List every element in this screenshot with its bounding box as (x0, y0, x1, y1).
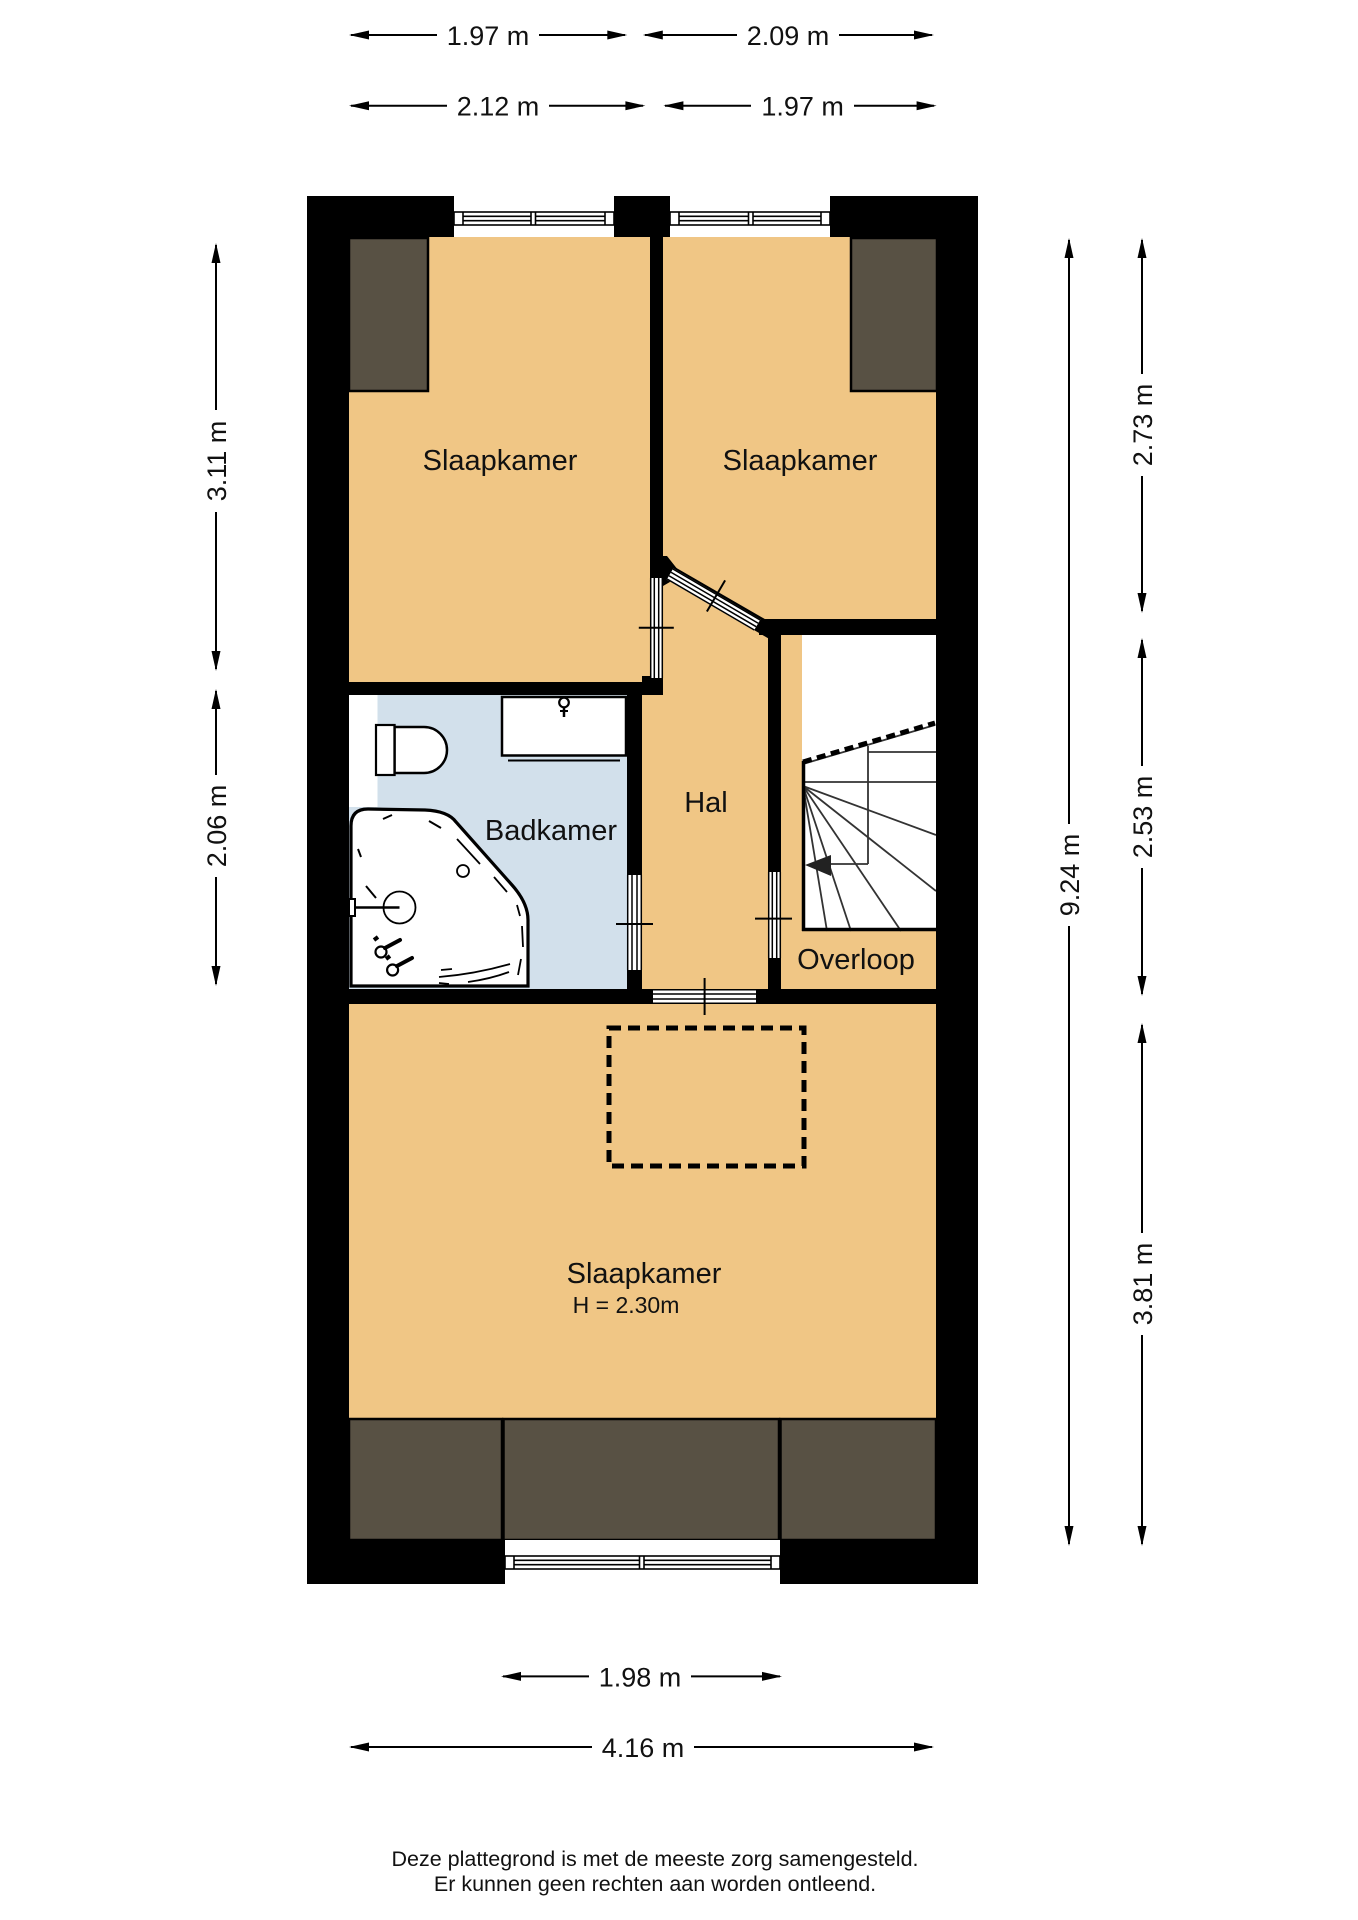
svg-text:2.53 m: 2.53 m (1128, 776, 1158, 859)
svg-text:4.16 m: 4.16 m (602, 1733, 685, 1763)
svg-text:2.12 m: 2.12 m (457, 92, 540, 122)
svg-text:Deze plattegrond is met de mee: Deze plattegrond is met de meeste zorg s… (391, 1847, 918, 1871)
svg-text:Slaapkamer: Slaapkamer (567, 1258, 722, 1290)
svg-text:3.11 m: 3.11 m (202, 421, 232, 502)
svg-text:2.09 m: 2.09 m (747, 21, 830, 51)
svg-text:3.81 m: 3.81 m (1128, 1243, 1158, 1326)
svg-text:1.97 m: 1.97 m (447, 21, 530, 51)
svg-text:H = 2.30m: H = 2.30m (573, 1292, 680, 1318)
svg-text:Slaapkamer: Slaapkamer (423, 445, 578, 477)
svg-text:Slaapkamer: Slaapkamer (723, 445, 878, 477)
svg-text:1.97 m: 1.97 m (761, 92, 844, 122)
svg-text:2.73 m: 2.73 m (1128, 384, 1158, 467)
svg-text:2.06 m: 2.06 m (202, 785, 232, 868)
svg-text:1.98 m: 1.98 m (599, 1662, 682, 1692)
svg-text:Overloop: Overloop (797, 944, 915, 976)
svg-text:Er kunnen geen rechten aan wor: Er kunnen geen rechten aan worden ontlee… (434, 1872, 876, 1896)
svg-text:9.24 m: 9.24 m (1055, 834, 1085, 917)
svg-text:Hal: Hal (684, 787, 728, 819)
svg-text:Badkamer: Badkamer (485, 815, 618, 847)
